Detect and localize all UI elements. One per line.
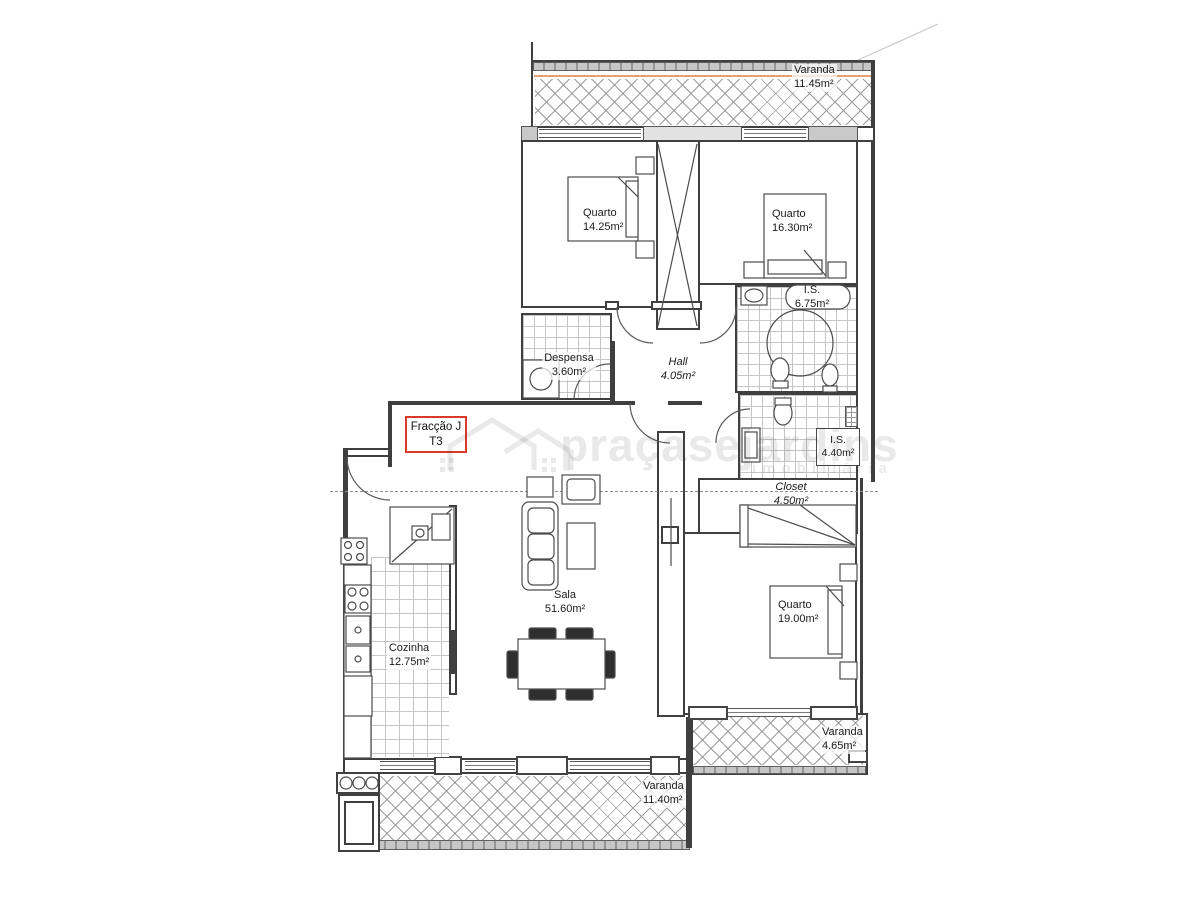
- sala-hall-door-arc: [630, 403, 670, 443]
- room-area: 6.75m²: [795, 298, 829, 312]
- room-label-sala: Sala 51.60m²: [545, 589, 585, 617]
- room-area: 11.45m²: [794, 78, 835, 92]
- room-label-is-2: I.S. 4.40m²: [822, 434, 855, 460]
- door-arcs: [347, 307, 750, 500]
- bathroom-2-fixtures: [742, 398, 792, 462]
- room-label-quarto-2: Quarto 16.30m²: [772, 208, 812, 236]
- room-name: Varanda: [794, 64, 835, 78]
- room-area: 3.60m²: [544, 366, 594, 380]
- room-name: Closet: [774, 481, 808, 495]
- room-label-varanda-top: Varanda 11.45m²: [792, 64, 837, 92]
- room-area: 4.05m²: [661, 370, 695, 384]
- sofa: [522, 502, 558, 590]
- armchair: [562, 475, 600, 504]
- leader-line: [858, 24, 938, 60]
- room-area: 14.25m²: [583, 221, 623, 235]
- kitchen-fixtures: [341, 507, 454, 758]
- gas-bottles: [340, 777, 378, 789]
- room-name: I.S.: [822, 434, 855, 447]
- room-label-hall: Hall 4.05m²: [661, 356, 695, 384]
- room-name: Despensa: [544, 352, 594, 366]
- closet-wardrobe: [740, 505, 856, 547]
- room-area: 4.40m²: [822, 447, 855, 460]
- room-name: Varanda: [643, 780, 684, 794]
- floor-plan: Varanda 11.45m² Quarto 14.25m² Quarto 16…: [0, 0, 1200, 900]
- room-area: 19.00m²: [778, 613, 818, 627]
- unit-tag-box: Fracção J T3: [405, 416, 467, 453]
- room-label-varanda-right: Varanda 4.65m²: [820, 726, 865, 754]
- room-label-varanda-bottom: Varanda 11.40m²: [641, 780, 686, 808]
- wardrobe-quarto-1-lines: [658, 144, 697, 326]
- room-name: Quarto: [778, 599, 818, 613]
- room-area: 16.30m²: [772, 222, 812, 236]
- room-label-cozinha: Cozinha 12.75m²: [387, 642, 431, 670]
- room-label-closet: Closet 4.50m²: [774, 481, 808, 509]
- hall-left-door-arc: [617, 307, 653, 343]
- unit-typology: T3: [429, 435, 442, 450]
- room-label-box-is-2: I.S. 4.40m²: [816, 428, 860, 466]
- room-name: Hall: [661, 356, 695, 370]
- room-label-quarto-1: Quarto 14.25m²: [583, 207, 623, 235]
- entry-door-arc: [347, 457, 390, 500]
- room-name: Cozinha: [389, 642, 429, 656]
- room-label-despensa: Despensa 3.60m²: [542, 352, 596, 380]
- unit-fraction: Fracção J: [411, 420, 462, 435]
- room-name: Sala: [545, 589, 585, 603]
- room-name: Quarto: [583, 207, 623, 221]
- room-name: Quarto: [772, 208, 812, 222]
- room-area: 51.60m²: [545, 603, 585, 617]
- room-label-is-1: I.S. 6.75m²: [795, 284, 829, 312]
- room-area: 4.50m²: [774, 495, 808, 509]
- dining-set: [507, 628, 615, 700]
- coffee-table: [567, 523, 595, 569]
- fixtures-layer: [0, 0, 1200, 900]
- side-table: [527, 477, 553, 497]
- room-label-quarto-3: Quarto 19.00m²: [778, 599, 818, 627]
- room-area: 4.65m²: [822, 740, 863, 754]
- room-area: 11.40m²: [643, 794, 684, 808]
- room-name: I.S.: [795, 284, 829, 298]
- room-area: 12.75m²: [389, 656, 429, 670]
- hall-right-door-arc: [700, 307, 736, 343]
- room-name: Varanda: [822, 726, 863, 740]
- bed-quarto-2: [744, 194, 846, 278]
